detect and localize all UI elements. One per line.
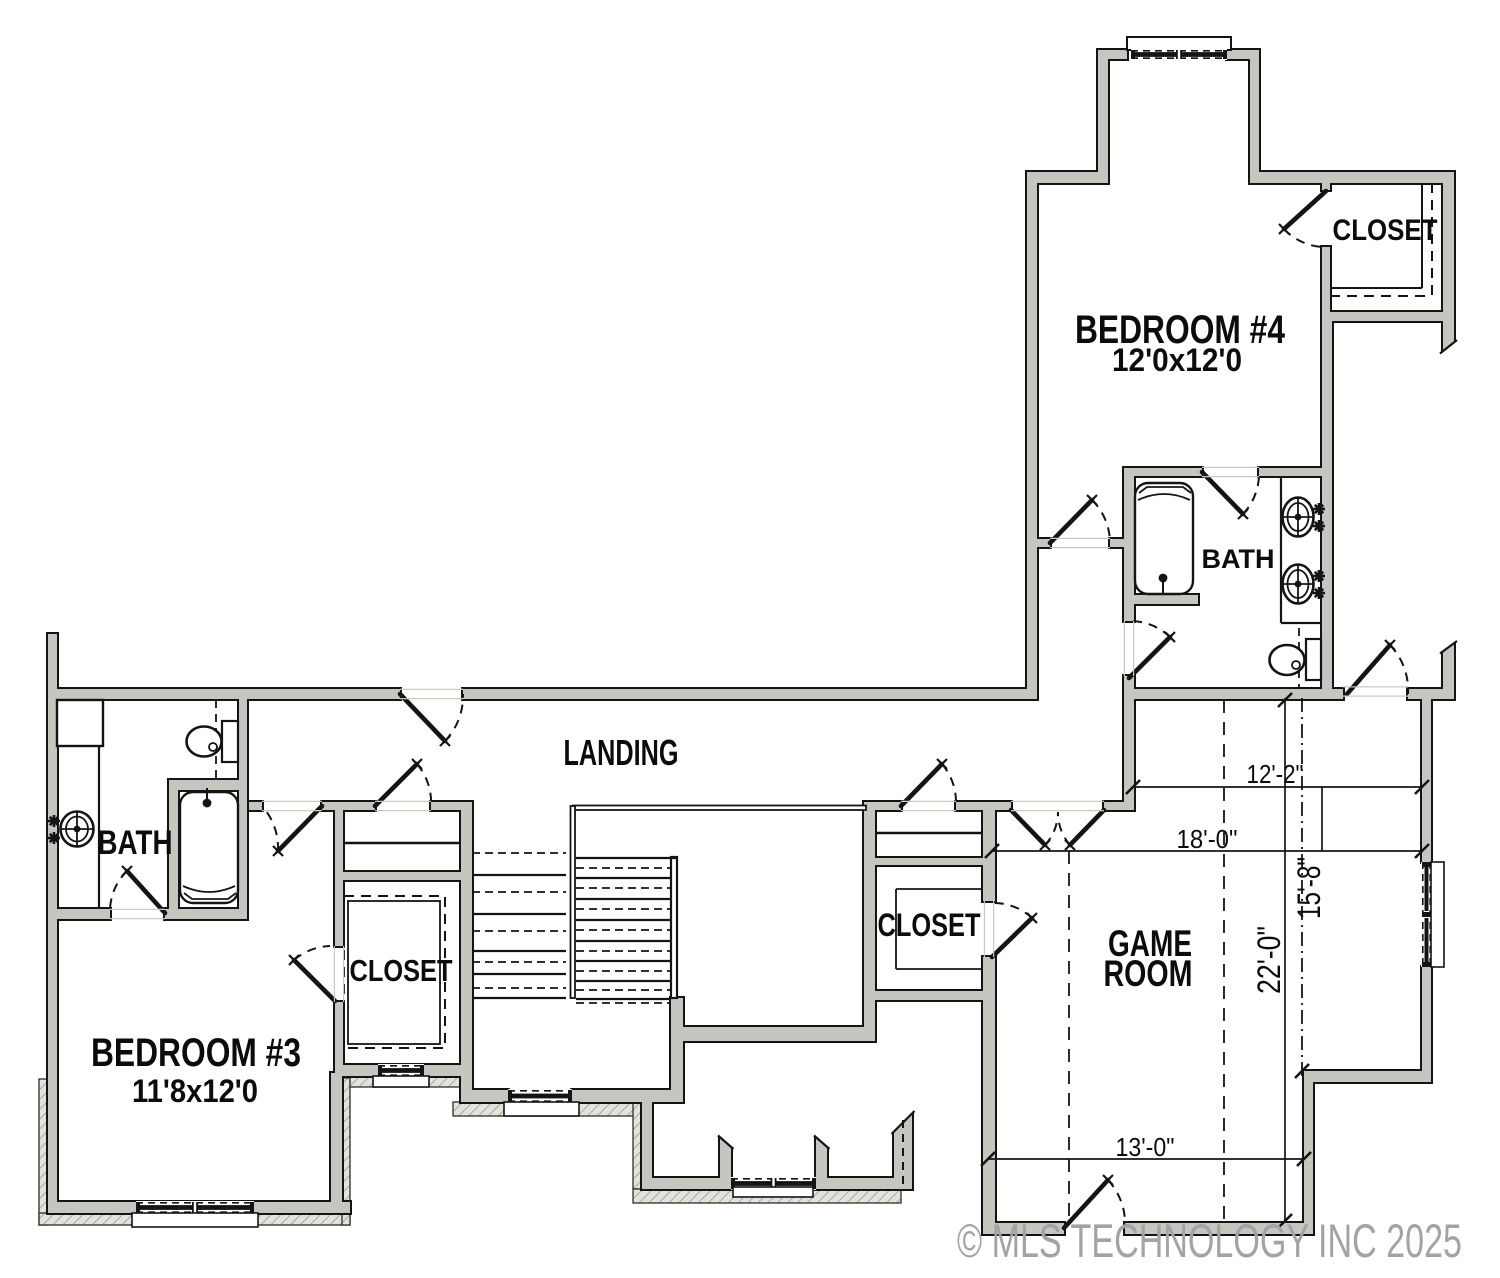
svg-text:CLOSET: CLOSET bbox=[878, 907, 981, 943]
svg-text:BEDROOM #3: BEDROOM #3 bbox=[91, 1031, 301, 1075]
svg-text:ROOM: ROOM bbox=[1104, 953, 1193, 994]
svg-text:12'0x12'0: 12'0x12'0 bbox=[1112, 342, 1242, 378]
svg-text:12'-2": 12'-2" bbox=[1247, 759, 1304, 789]
svg-text:BATH: BATH bbox=[1202, 544, 1275, 574]
svg-text:18'-0": 18'-0" bbox=[1177, 824, 1238, 854]
svg-text:15'-8": 15'-8" bbox=[1291, 857, 1327, 919]
svg-text:BATH: BATH bbox=[98, 824, 173, 862]
svg-text:11'8x12'0: 11'8x12'0 bbox=[132, 1073, 258, 1109]
svg-text:LANDING: LANDING bbox=[564, 732, 679, 773]
svg-text:CLOSET: CLOSET bbox=[350, 953, 453, 988]
svg-text:© MLS TECHNOLOGY INC 2025: © MLS TECHNOLOGY INC 2025 bbox=[957, 1214, 1462, 1267]
svg-text:22'-0": 22'-0" bbox=[1251, 926, 1287, 994]
svg-text:CLOSET: CLOSET bbox=[1333, 214, 1438, 247]
svg-text:13'-0": 13'-0" bbox=[1116, 1132, 1175, 1162]
